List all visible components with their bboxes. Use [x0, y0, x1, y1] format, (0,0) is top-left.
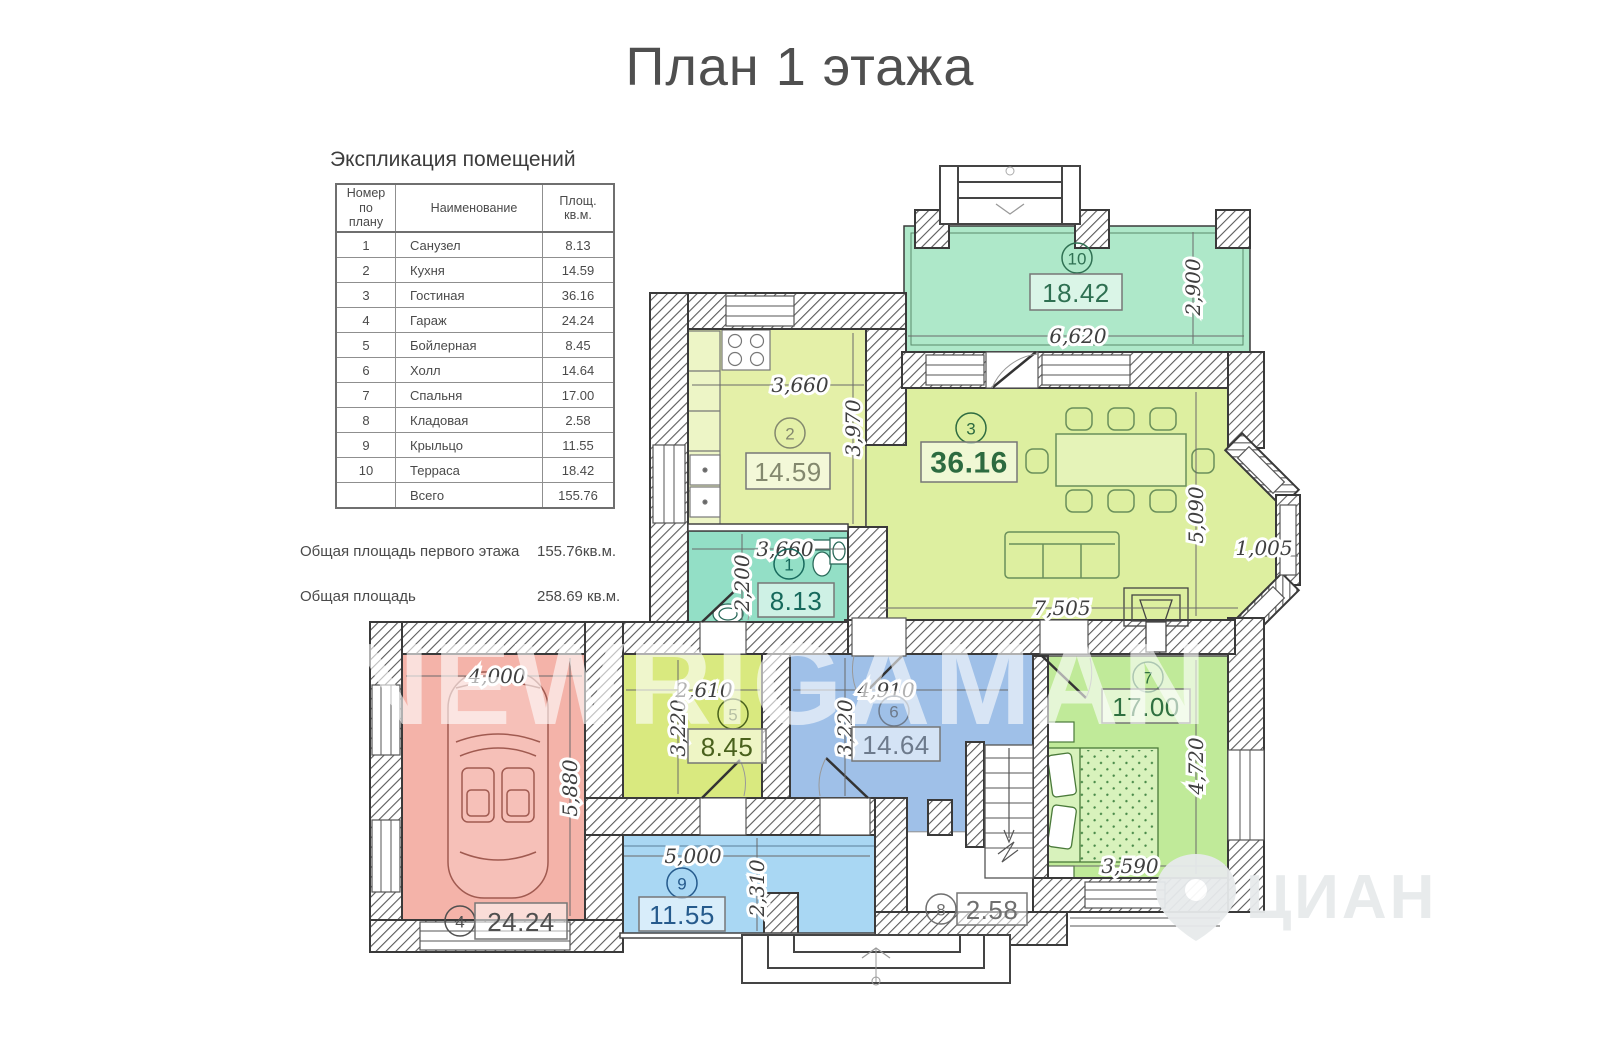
svg-text:7,505: 7,505 [1033, 596, 1090, 620]
window [653, 445, 685, 523]
stove-icon [722, 330, 770, 370]
svg-text:24.24: 24.24 [487, 907, 555, 937]
floor-plan: 6,620 2,900 3,660 3,970 3,660 2,200 7,50… [0, 0, 1600, 1060]
window [926, 355, 984, 385]
page: План 1 этажа Экспликация помещений Номер… [0, 0, 1600, 1060]
svg-text:2,200: 2,200 [730, 554, 754, 613]
svg-text:5,090: 5,090 [1184, 486, 1208, 544]
svg-text:10: 10 [1068, 250, 1087, 269]
svg-text:11.55: 11.55 [649, 900, 715, 930]
room-living [866, 388, 1280, 626]
cian-logo: ЦИАН [1156, 854, 1437, 941]
svg-text:36.16: 36.16 [930, 447, 1008, 480]
bed [1046, 748, 1158, 862]
svg-text:1: 1 [784, 556, 793, 575]
porch-steps [742, 935, 1010, 985]
svg-text:5,000: 5,000 [664, 844, 722, 868]
svg-text:2: 2 [785, 425, 794, 444]
terrace-steps [940, 166, 1080, 224]
svg-text:5,880: 5,880 [558, 759, 582, 817]
svg-text:3,660: 3,660 [771, 373, 829, 397]
window [1042, 355, 1130, 385]
svg-text:3,970: 3,970 [841, 399, 865, 457]
window [726, 296, 794, 326]
svg-text:6,620: 6,620 [1049, 324, 1107, 348]
washbasin-icon [830, 538, 848, 564]
svg-text:9: 9 [677, 875, 686, 894]
window [372, 820, 400, 892]
window [1228, 750, 1264, 840]
watermark-text: NEWRIGAMAN [346, 619, 1211, 749]
svg-text:2.58: 2.58 [966, 895, 1019, 925]
svg-text:8: 8 [936, 901, 945, 920]
svg-text:2,900: 2,900 [1181, 258, 1205, 317]
svg-text:18.42: 18.42 [1042, 278, 1110, 308]
svg-text:8.13: 8.13 [770, 586, 823, 616]
staircase [985, 745, 1033, 878]
svg-text:1,005: 1,005 [1235, 536, 1292, 560]
svg-text:3: 3 [966, 420, 975, 439]
svg-text:14.59: 14.59 [754, 457, 822, 487]
svg-text:4: 4 [455, 913, 464, 932]
svg-text:3,590: 3,590 [1101, 854, 1159, 878]
cian-logo-text: ЦИАН [1246, 863, 1437, 932]
window [1085, 882, 1165, 908]
svg-text:2,310: 2,310 [745, 859, 769, 918]
